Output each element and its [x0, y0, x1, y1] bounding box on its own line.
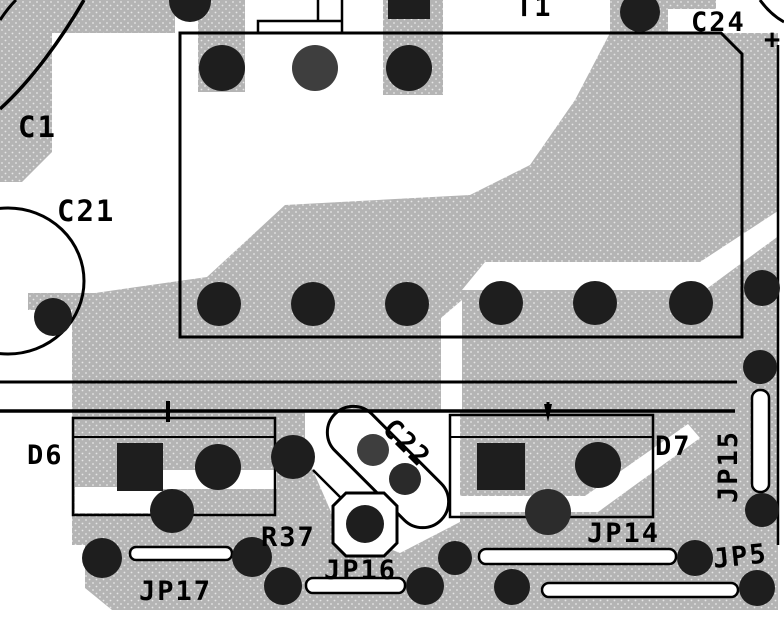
label-jp16: JP16: [324, 555, 397, 586]
pad: [438, 541, 472, 575]
pad: [494, 569, 530, 605]
label-jp5: JP5: [711, 538, 769, 575]
label-t1: T1: [516, 0, 553, 23]
jumper-jp17-slot: [130, 547, 232, 560]
pad-square-d7: [477, 443, 525, 490]
pad: [677, 540, 713, 576]
pad: [406, 567, 444, 605]
label-jp17: JP17: [139, 576, 212, 607]
pad-r37-center: [346, 505, 384, 543]
label-c24: C24: [691, 7, 746, 38]
pad: [34, 298, 72, 336]
pad-square-top: [388, 0, 430, 19]
pcb-board-view: C1 C21 T1 C24 + D6 D7 C22 JP15 R37 JP16 …: [0, 0, 784, 631]
capacitor-c24-arc: [760, 0, 784, 22]
pad: [573, 281, 617, 325]
pad: [150, 489, 194, 533]
label-r37: R37: [261, 522, 316, 553]
pad: [669, 281, 713, 325]
pour-top-left: [0, 0, 175, 182]
jumper-jp15-slot: [752, 390, 769, 492]
label-c24-polarity: +: [764, 24, 782, 55]
label-jp14: JP14: [587, 518, 660, 549]
pad: [195, 444, 241, 490]
pad: [386, 45, 432, 91]
pad-square-d6: [117, 443, 163, 491]
pad: [291, 282, 335, 326]
pad: [745, 493, 779, 527]
pad: [264, 567, 302, 605]
pad: [739, 570, 775, 606]
label-c21: C21: [57, 194, 115, 228]
pad: [479, 281, 523, 325]
pad: [744, 270, 780, 306]
label-d6: D6: [27, 440, 64, 471]
pad: [385, 282, 429, 326]
pad: [525, 489, 571, 535]
pad: [743, 350, 777, 384]
jumper-jp5-slot: [542, 583, 738, 597]
label-jp15: JP15: [713, 430, 744, 503]
pad: [292, 45, 338, 91]
pcb-layout-svg: C1 C21 T1 C24 + D6 D7 C22 JP15 R37 JP16 …: [0, 0, 784, 631]
pad: [197, 282, 241, 326]
keepout-slash-center: [441, 300, 462, 412]
pad: [82, 538, 122, 578]
jumper-jp14-slot: [479, 549, 676, 564]
pad: [199, 45, 245, 91]
transformer-t1-top-tab: [258, 0, 342, 33]
pad: [271, 435, 315, 479]
label-d7: D7: [655, 431, 692, 462]
label-c1: C1: [18, 110, 57, 144]
pad: [575, 442, 621, 488]
